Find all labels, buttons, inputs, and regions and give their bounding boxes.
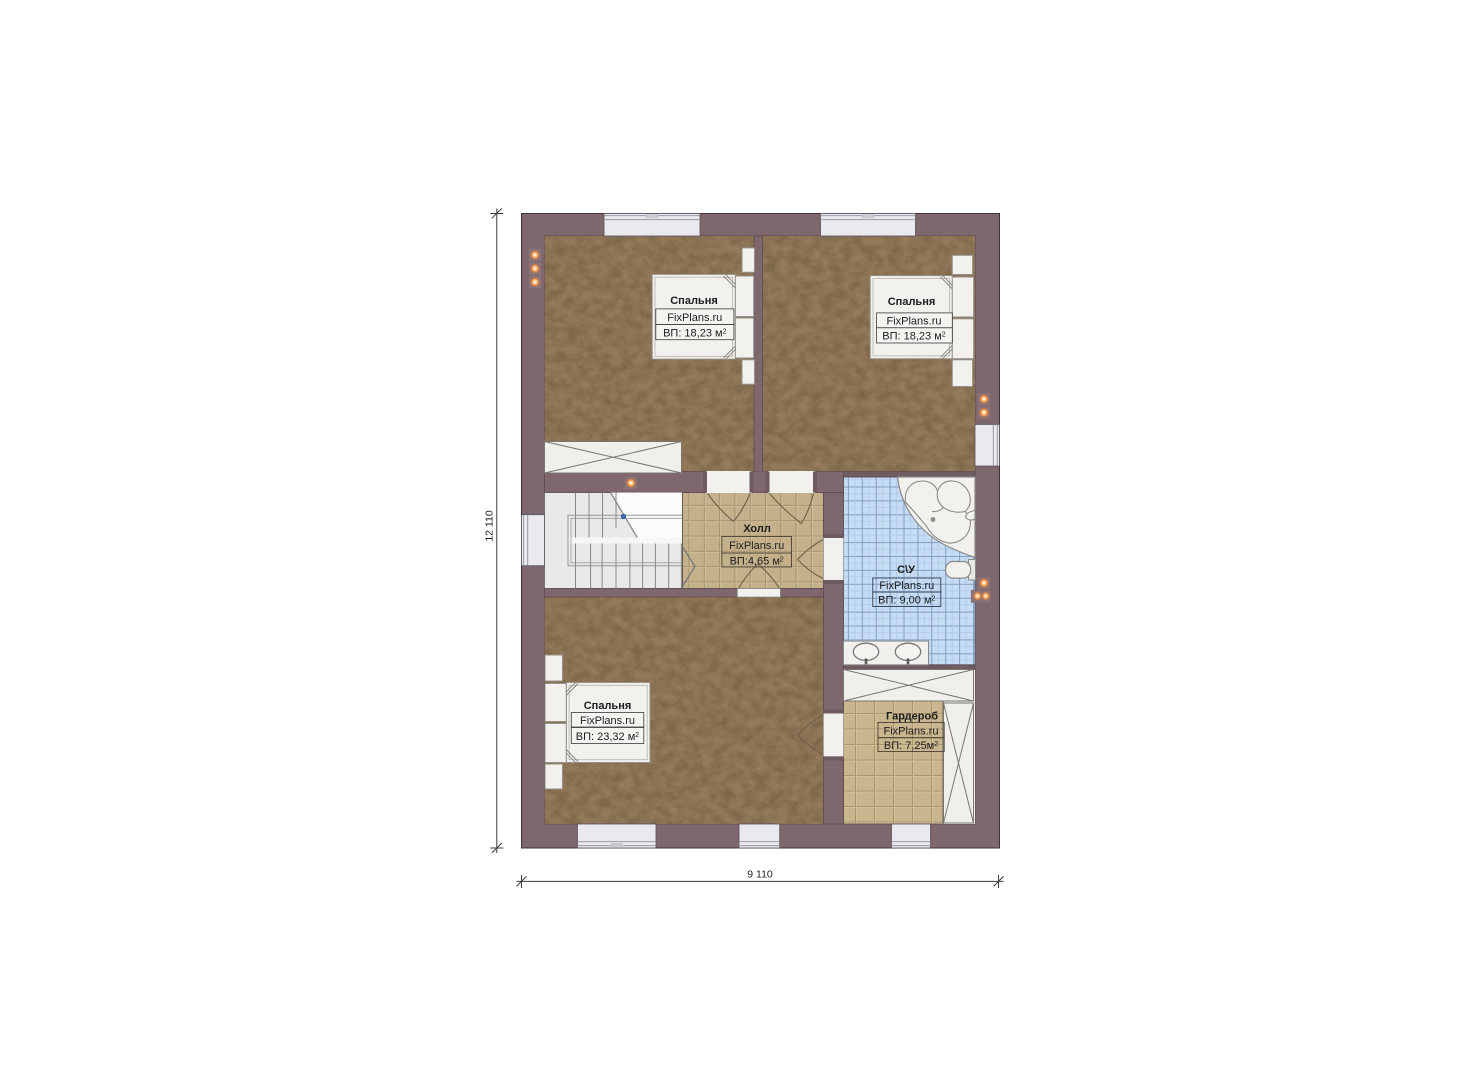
svg-text:9 110: 9 110 — [747, 869, 773, 881]
svg-text:ВП: 18,23 м2: ВП: 18,23 м2 — [882, 331, 946, 343]
svg-text:12 110: 12 110 — [484, 510, 496, 541]
svg-text:Гардероб: Гардероб — [886, 711, 938, 723]
svg-text:ВП:4,65 м2: ВП:4,65 м2 — [730, 555, 784, 567]
svg-text:Спальня: Спальня — [888, 296, 936, 308]
svg-text:FixPlans.ru: FixPlans.ru — [886, 315, 941, 327]
svg-text:ВП: 9,00 м2: ВП: 9,00 м2 — [878, 595, 935, 607]
svg-text:Холл: Холл — [743, 523, 771, 535]
svg-text:FixPlans.ru: FixPlans.ru — [879, 580, 934, 592]
svg-text:С\У: С\У — [897, 564, 915, 576]
svg-text:ВП: 18,23 м2: ВП: 18,23 м2 — [663, 327, 727, 339]
svg-text:Спальня: Спальня — [584, 700, 632, 712]
svg-text:FixPlans.ru: FixPlans.ru — [580, 715, 635, 727]
svg-text:FixPlans.ru: FixPlans.ru — [729, 540, 784, 552]
svg-text:FixPlans.ru: FixPlans.ru — [667, 312, 722, 324]
svg-text:ВП: 23,32 м2: ВП: 23,32 м2 — [576, 731, 640, 743]
svg-text:Спальня: Спальня — [670, 295, 718, 307]
svg-text:ВП: 7,25м2: ВП: 7,25м2 — [884, 740, 938, 752]
svg-text:FixPlans.ru: FixPlans.ru — [883, 725, 938, 737]
